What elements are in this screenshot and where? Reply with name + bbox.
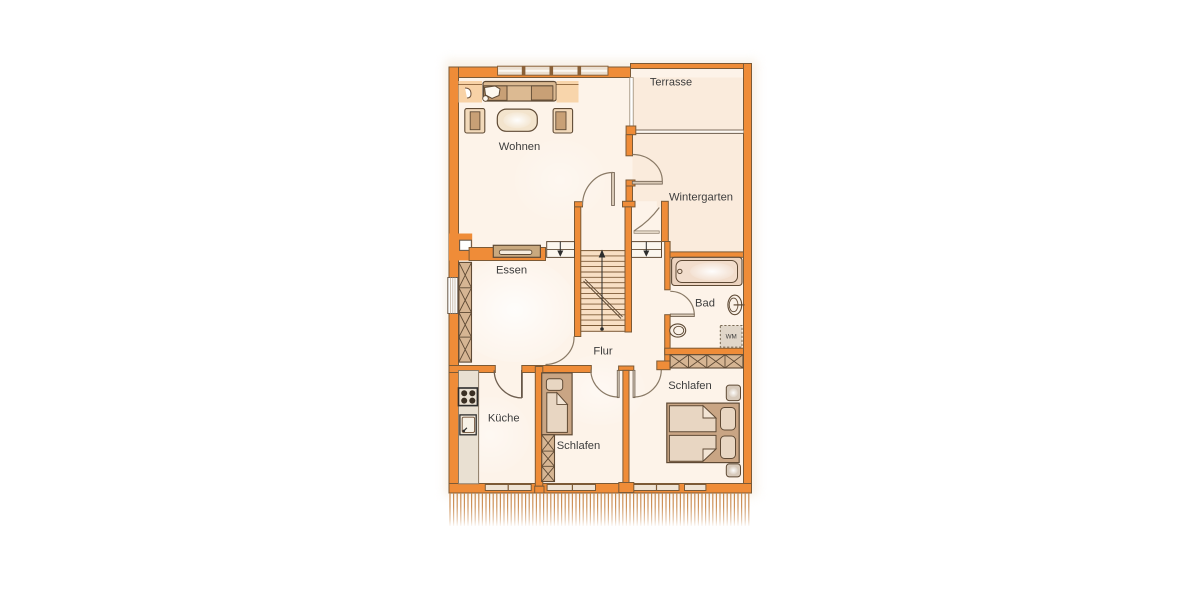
svg-text:Flur: Flur [593,346,613,358]
svg-text:Wintergarten: Wintergarten [669,192,733,204]
svg-text:Bad: Bad [695,298,715,310]
svg-text:Essen: Essen [496,265,527,277]
svg-text:Schlafen: Schlafen [668,380,712,392]
svg-text:WM: WM [726,334,737,341]
svg-text:Terrasse: Terrasse [650,77,692,89]
svg-text:Küche: Küche [488,413,520,425]
svg-text:Schlafen: Schlafen [557,440,601,452]
svg-text:Wohnen: Wohnen [499,141,540,153]
